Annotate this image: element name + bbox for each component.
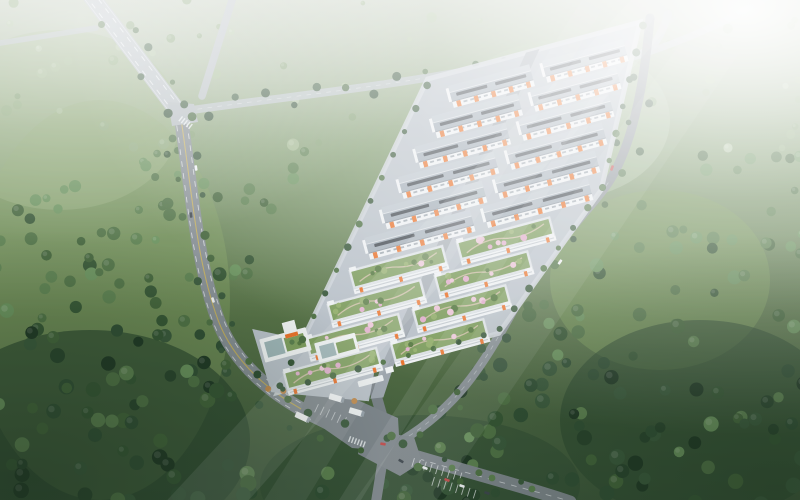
- aerial-industrial-park-render: [0, 0, 800, 500]
- shadow-vignette-bottomright: [0, 0, 800, 500]
- render-canvas: [0, 0, 800, 500]
- haze-overlay: [0, 0, 800, 500]
